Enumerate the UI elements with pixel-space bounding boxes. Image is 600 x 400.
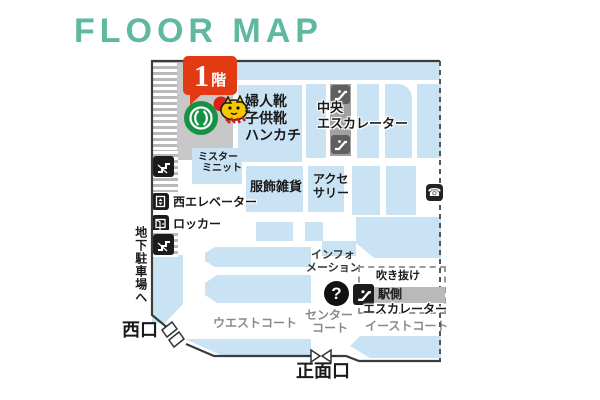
page-title: FLOOR MAP bbox=[74, 12, 323, 51]
mascot-logo bbox=[212, 95, 252, 129]
area-west-corridor bbox=[152, 255, 183, 323]
locker-label: ロッカー bbox=[173, 218, 221, 232]
information-question-icon: ? bbox=[324, 281, 349, 306]
central-escalator-label: 中央 エスカレーター bbox=[317, 100, 408, 132]
area-small-1 bbox=[256, 222, 293, 241]
area-mid-bar-1 bbox=[205, 247, 311, 267]
stairs-icon bbox=[153, 234, 174, 255]
public-phone-icon: ☎ bbox=[426, 184, 443, 201]
area-bottom-bar bbox=[185, 339, 311, 356]
west-entrance-door-icon bbox=[156, 317, 192, 353]
area-column-d bbox=[417, 84, 441, 158]
stairs-stripe-band-top bbox=[152, 63, 177, 158]
main-entrance-door-icon bbox=[306, 348, 336, 364]
main-entrance-label: 正面口 bbox=[296, 361, 350, 382]
station-escalator-label-2: エスカレーター bbox=[363, 303, 447, 317]
mister-minit-label: ミスター ミニット bbox=[198, 152, 242, 174]
area-right-2 bbox=[386, 166, 416, 215]
stairs-icon bbox=[153, 156, 174, 177]
floor-badge: 1階 bbox=[183, 56, 237, 95]
escalator-icon bbox=[331, 135, 350, 154]
west-exit-label: 西口 bbox=[122, 320, 158, 341]
area-small-2 bbox=[305, 222, 323, 241]
west-court-label: ウエストコート bbox=[213, 314, 297, 331]
accessories-label: アクセ サリー bbox=[313, 172, 349, 200]
area-top-band bbox=[237, 62, 440, 80]
station-escalator-label-1: 駅側 bbox=[378, 288, 402, 302]
womens-shoes-label: 婦人靴 子供靴 ハンカチ bbox=[245, 93, 301, 144]
information-label: インフォ メーション bbox=[306, 249, 361, 275]
area-east-court-block bbox=[350, 336, 441, 358]
east-court-label: イーストコート bbox=[365, 317, 448, 334]
area-east-upper bbox=[356, 217, 441, 258]
underground-parking-label: 地下駐車場へ bbox=[133, 226, 147, 304]
area-mid-bar-2 bbox=[205, 275, 311, 303]
center-court-label: センター コート bbox=[305, 309, 353, 335]
west-elevator-label: 西エレベーター bbox=[173, 196, 257, 210]
fashion-goods-label: 服飾雑貨 bbox=[250, 180, 302, 195]
atrium-label: 吹き抜け bbox=[376, 270, 420, 283]
elevator-icon bbox=[152, 193, 169, 210]
area-right-1 bbox=[352, 166, 380, 215]
floor-map-page: FLOOR MAP 西エレベーター ロッカー 婦人靴 bbox=[0, 0, 600, 400]
